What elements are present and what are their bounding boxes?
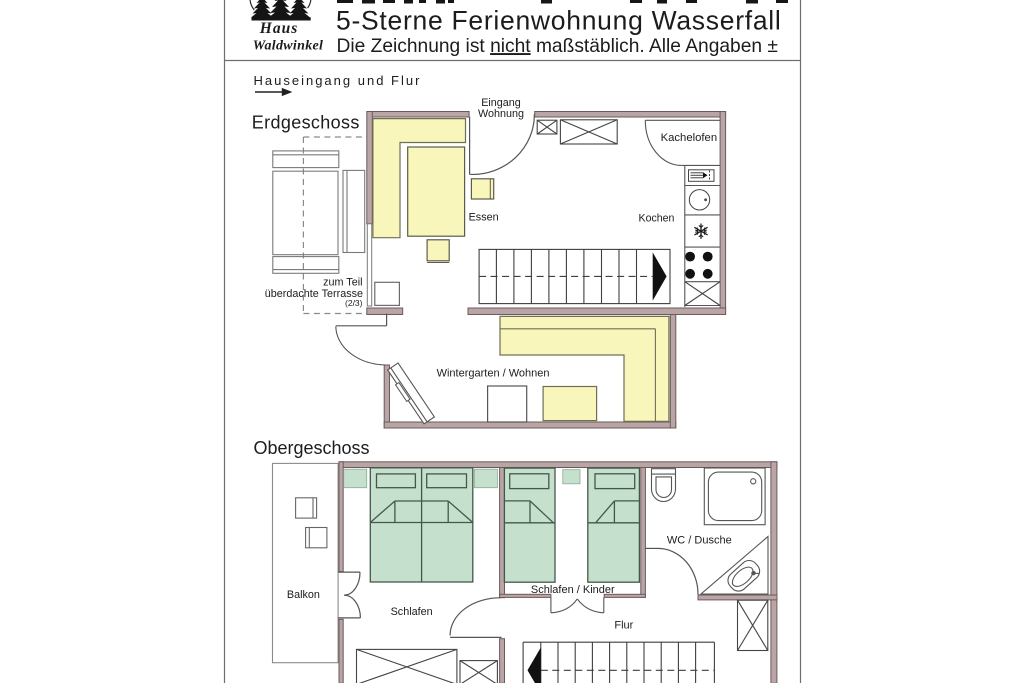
svg-text:zum Teil: zum Teil (323, 277, 362, 289)
svg-text:Schlafen / Kinder: Schlafen / Kinder (531, 584, 615, 596)
svg-text:Haus: Haus (259, 20, 298, 37)
svg-text:Erdgeschoss: Erdgeschoss (252, 113, 360, 133)
svg-text:Balkon: Balkon (287, 589, 320, 601)
svg-text:Wintergarten / Wohnen: Wintergarten / Wohnen (437, 368, 550, 380)
svg-text:Obergeschoss: Obergeschoss (254, 438, 370, 458)
svg-text:Essen: Essen (469, 212, 499, 224)
svg-text:Die Zeichnung ist nicht maßstä: Die Zeichnung ist nicht maßstäblich. All… (337, 36, 778, 57)
svg-text:Waldwinkel: Waldwinkel (253, 39, 323, 54)
svg-text:5-Sterne Ferienwohnung Wasserf: 5-Sterne Ferienwohnung Wasserfall (336, 5, 782, 35)
svg-text:Kochen: Kochen (639, 213, 675, 225)
svg-text:Hauseingang und Flur: Hauseingang und Flur (254, 73, 422, 88)
svg-text:Wohnung: Wohnung (478, 108, 524, 120)
svg-text:WC / Dusche: WC / Dusche (667, 534, 732, 546)
svg-text:Schlafen: Schlafen (391, 606, 433, 618)
svg-text:Flur: Flur (614, 620, 633, 632)
svg-text:(2/3): (2/3) (345, 298, 363, 308)
svg-text:Kachelofen: Kachelofen (661, 132, 718, 144)
